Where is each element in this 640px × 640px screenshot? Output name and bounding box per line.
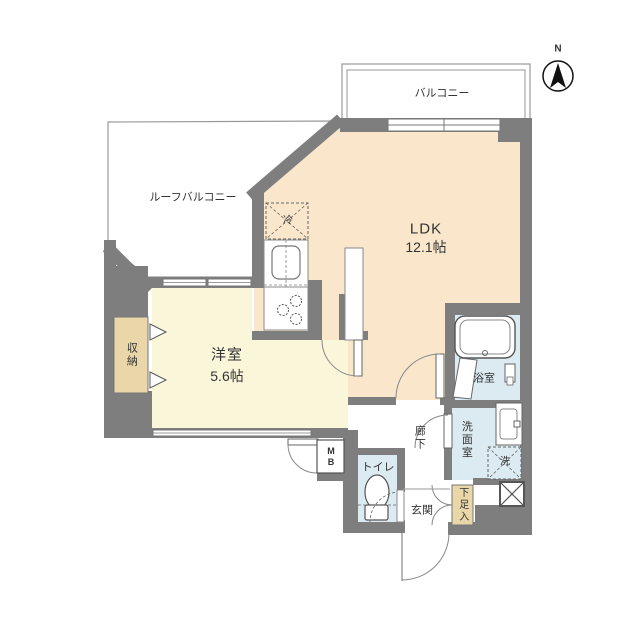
wall-se-bottom	[448, 525, 532, 535]
toilet-door	[397, 490, 404, 522]
shoe-storage-label: 下足入	[456, 487, 468, 523]
bathroom-label: 浴室	[473, 373, 495, 386]
compass	[543, 61, 573, 91]
floorplan-drawing	[0, 0, 640, 640]
mb-door	[288, 439, 318, 445]
toilet-label: トイレ	[362, 462, 395, 475]
compass-north-label: N	[554, 43, 561, 55]
storage-label: 収納	[125, 342, 138, 368]
wall-hall-wash-bottom	[444, 448, 452, 480]
toilet-tank	[365, 505, 388, 520]
washroom-label: 洗面室	[460, 421, 473, 460]
western-room-label: 洋室	[211, 346, 243, 363]
wall-toilet-west	[343, 430, 358, 533]
western-room-door	[354, 340, 362, 376]
roof-balcony-label: ルーフバルコニー	[149, 192, 236, 205]
sliding-partition	[345, 248, 363, 340]
meter-box-label-m: M	[327, 446, 335, 456]
entrance-label: 玄関	[411, 505, 433, 518]
shoe-storage-door-swing	[432, 485, 452, 505]
hallway-label: 廊下	[413, 425, 426, 451]
wall-bath-north	[445, 303, 532, 315]
wall-toilet-north	[358, 448, 397, 455]
stove-burner	[278, 305, 289, 316]
wall-partition-track	[339, 294, 345, 340]
hall-washroom-door	[444, 414, 452, 448]
wall-kitchen-south	[252, 331, 322, 340]
wall-se-mid	[475, 505, 532, 527]
wall-ldk-hall-left	[348, 397, 396, 405]
washer-label: 洗	[500, 456, 510, 468]
stove-burner	[291, 314, 302, 325]
entrance-door-swing	[402, 533, 449, 580]
stove-burner	[291, 296, 302, 307]
wall-kitchen-west	[252, 190, 264, 288]
refrigerator-label: 冷	[283, 215, 293, 227]
pipe-space	[500, 482, 524, 506]
floorplan: バルコニー ルーフバルコニー LDK 12.1帖 洋室 5.6帖 収納 冷 浴室…	[0, 0, 640, 640]
wall-below-mb	[317, 473, 343, 481]
toilet-bowl	[365, 475, 389, 509]
meter-box-label-b: B	[328, 457, 335, 467]
western-room-size-label: 5.6帖	[210, 368, 243, 384]
ldk-size-label: 12.1帖	[405, 239, 446, 255]
wall-kitchen-east	[308, 280, 322, 337]
wall-toilet-east-upper	[397, 448, 405, 492]
washbasin-faucet	[514, 421, 520, 427]
mb-door-swing	[288, 445, 317, 473]
ldk-label: LDK	[410, 220, 442, 237]
ldk-hall-door	[436, 354, 444, 398]
wall-entrance-south-left	[343, 522, 405, 533]
balcony-label: バルコニー	[415, 88, 470, 101]
